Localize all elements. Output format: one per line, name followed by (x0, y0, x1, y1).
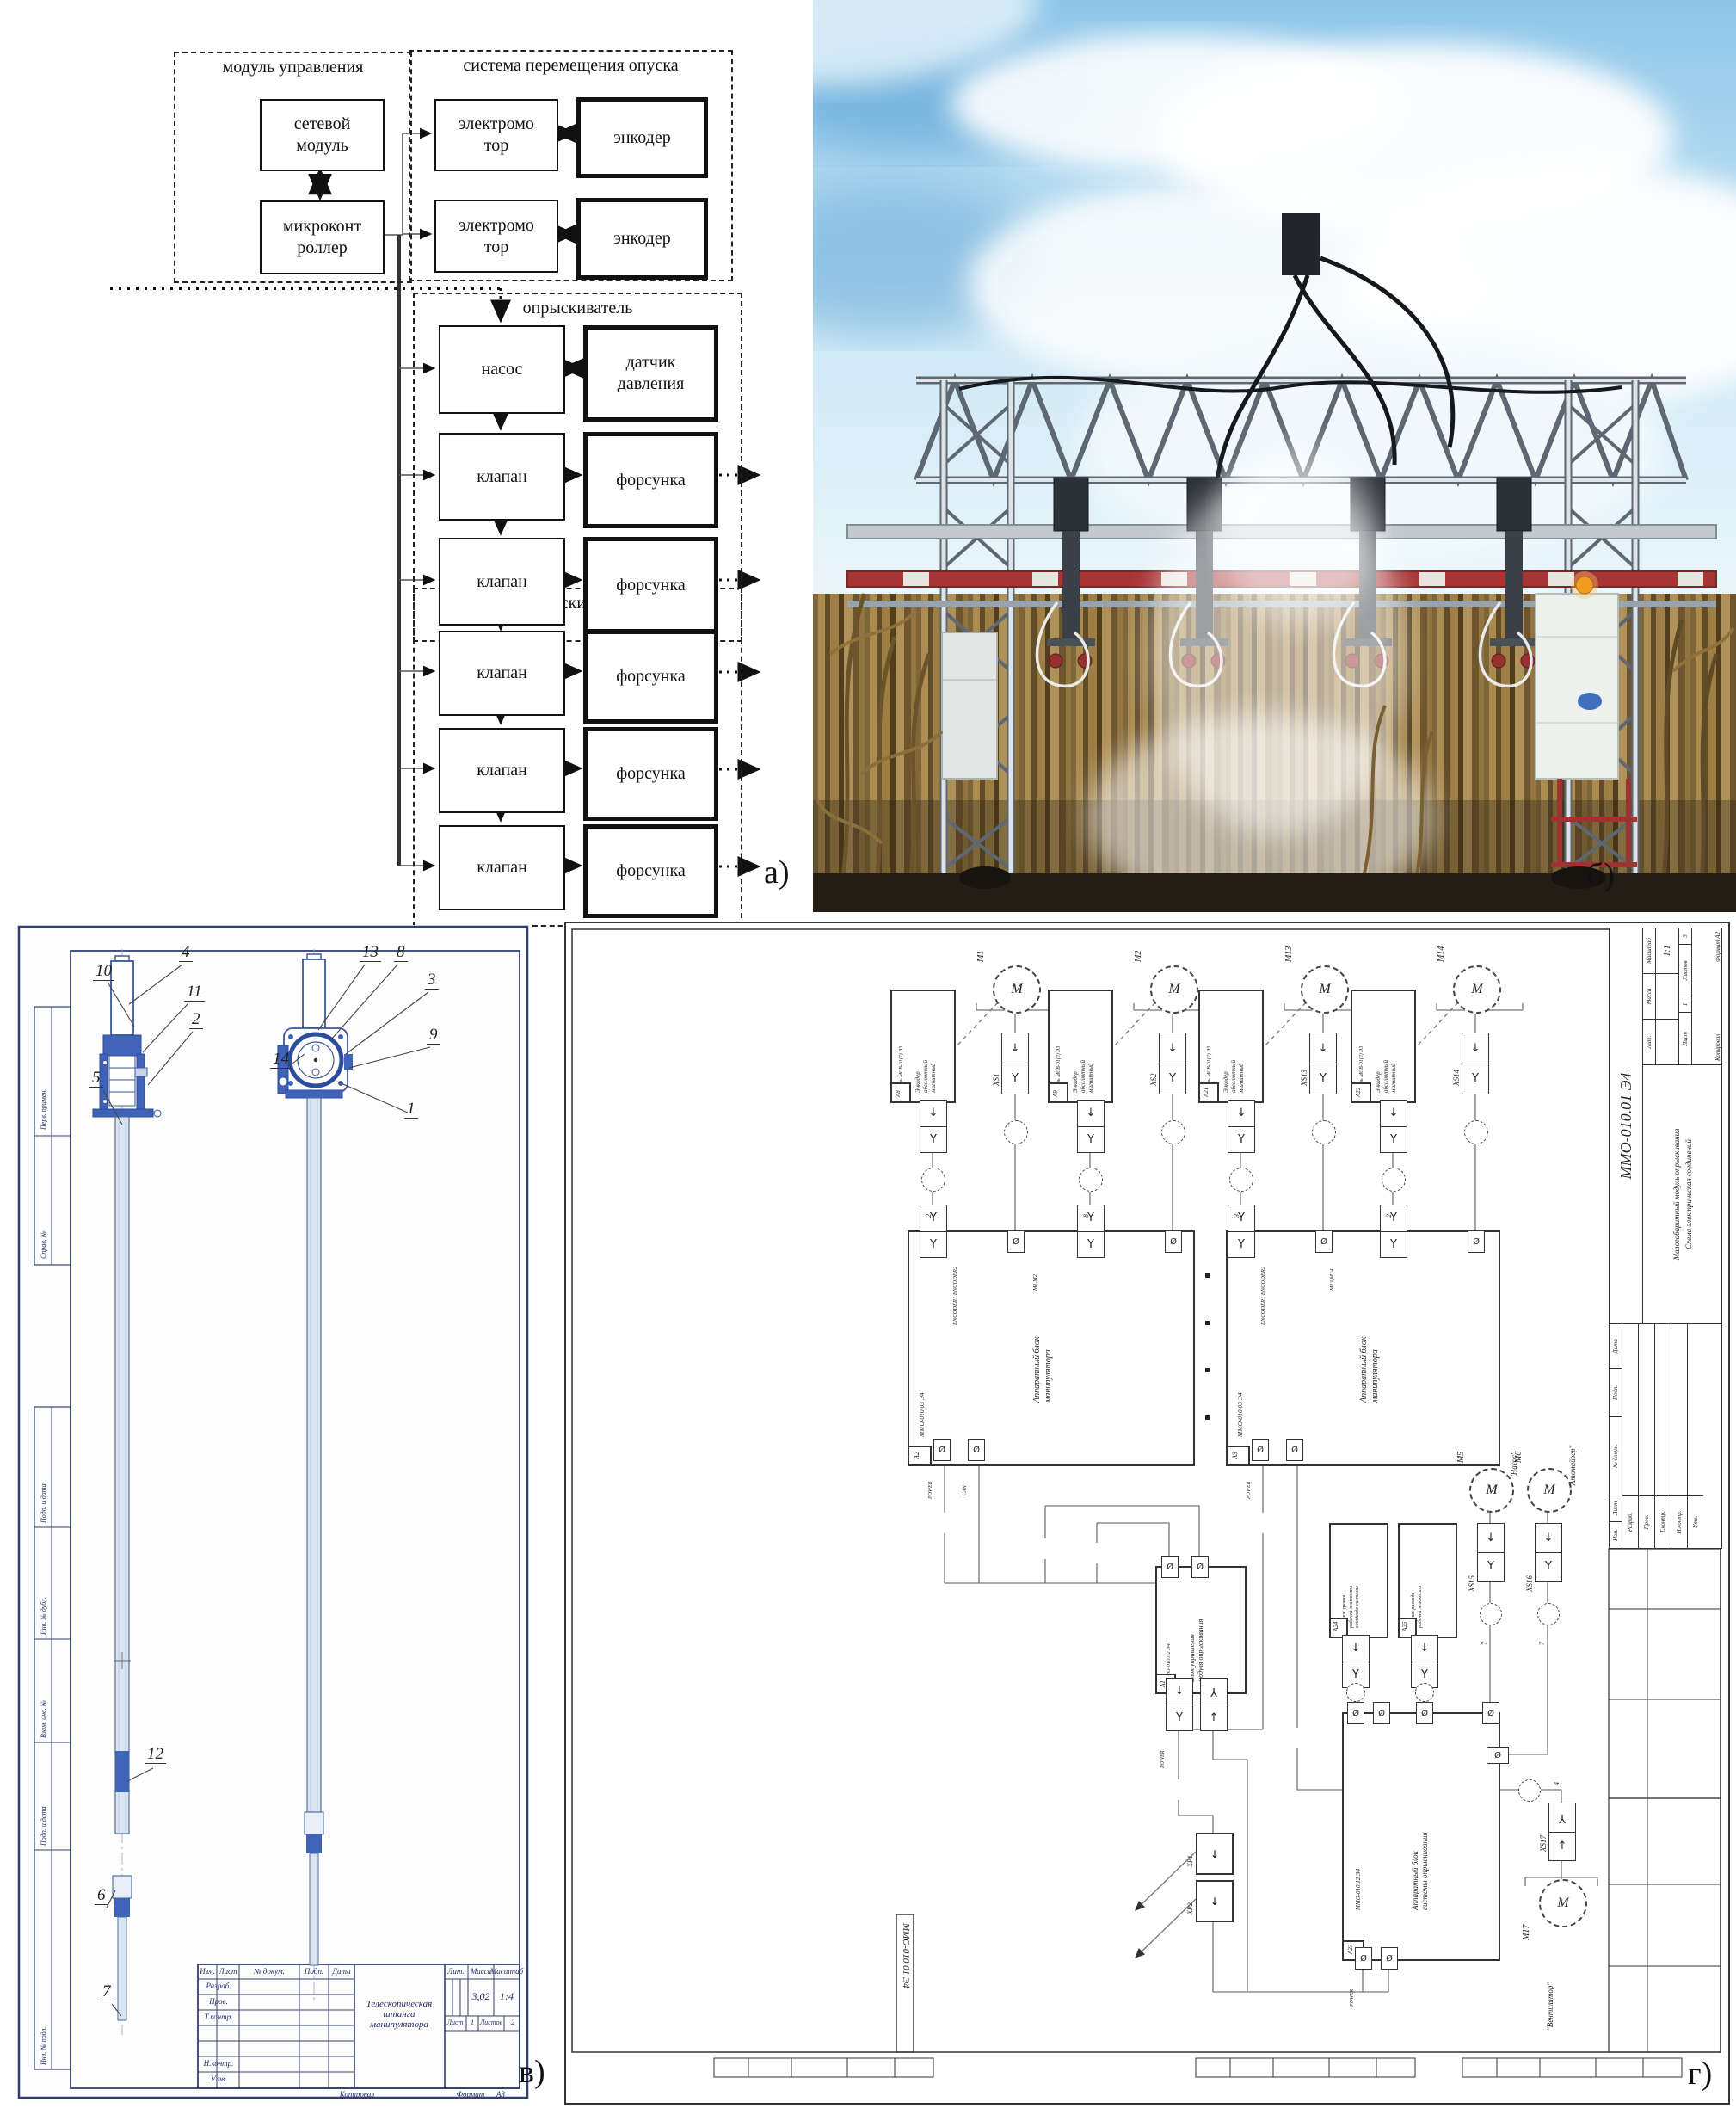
tb-mass-value: 3,02 (472, 1990, 490, 2003)
tb-footer-copy: Копировал (340, 2090, 374, 2099)
system-top-port-4: Ø (1482, 1702, 1499, 1724)
motor-circle-m17: М (1539, 1879, 1587, 1927)
xp1-box: ↓ (1196, 1833, 1234, 1875)
gtb-role-tkontr: Т.контр. (1655, 1495, 1671, 1548)
xp2-label: ХР2 (1186, 1902, 1195, 1914)
control-bottom-conn-2: Y↑ (1200, 1678, 1228, 1731)
manip-right-motor-port-1: Ø (1315, 1230, 1333, 1253)
manip-right-tag: А3 (1231, 1452, 1240, 1459)
block-pump: насос (439, 325, 565, 414)
system-bottom-port-2: Ø (1381, 1947, 1398, 1970)
left-control-box (942, 632, 997, 779)
motor-circle-m5: М (1469, 1468, 1514, 1513)
junction-circle (921, 1168, 945, 1192)
pump-label: М5 (1456, 1452, 1468, 1463)
xs-label-1: XS1 (992, 1074, 1001, 1087)
y-contact-icon: Y (1002, 1064, 1028, 1094)
xs17-connector: Y↑ (1548, 1803, 1576, 1861)
group-motion-label: система перемещения опуска (410, 56, 731, 76)
wire-number: 7 (1481, 1642, 1489, 1645)
arrow-down-icon: ↓ (920, 1101, 946, 1127)
xp1-label: ХР1 (1186, 1855, 1195, 1867)
schematic-title: Малогабаритный модуль опрыскивания (1672, 1129, 1681, 1261)
gtb-mass-header: Масса (1643, 973, 1655, 1019)
tb-role-razrab: Разраб. (206, 1982, 231, 1990)
group-sprayer1-label: опрыскиватель (415, 299, 741, 318)
motor-circle-m13: М (1301, 965, 1349, 1014)
manip-right-ports-top-label: ENCODER1 ENCODER2 (1260, 1267, 1267, 1325)
callout-6: 6 (95, 1887, 108, 1905)
system-top-port-3: Ø (1416, 1702, 1433, 1724)
y-contact-icon: Y (1160, 1064, 1185, 1094)
arrow-down-icon: ↓ (1160, 1033, 1185, 1064)
motor-label-m1: М1 (976, 951, 988, 962)
callout-1: 1 (404, 1101, 418, 1119)
rod-left-view (93, 949, 161, 2035)
sensor-flow-tag: А25 (1401, 1622, 1409, 1631)
encoder-connector-2: ↓Y (1077, 1100, 1105, 1153)
control-block-text: Блок управления модуля опрыскивания (1188, 1619, 1205, 1682)
block-nozzle-4: форсунка (583, 727, 718, 821)
schematic-title-block: Изм. Лист № докум. Подп. Дата Разраб. Пр… (1609, 928, 1722, 1549)
tb-sheet-value: 1 (471, 2019, 474, 2026)
schematic-designation-inverted: ММО-010.01 Э4 (901, 1923, 911, 1988)
callout-12: 12 (145, 1746, 166, 1764)
xs-connector-3: ↓Y (1309, 1033, 1337, 1094)
gtb-col-podp: Подп. (1610, 1368, 1622, 1416)
manip-left-power-label: POWER (928, 1482, 935, 1499)
encoder-module-text-3: Энкодер абсолютный магнитный (1222, 1060, 1245, 1093)
stamp-inv-podl: Инв. № подл. (40, 2027, 47, 2065)
y-contact-icon: Y (920, 1127, 946, 1153)
callout-4: 4 (179, 944, 193, 962)
y-contact-icon: Y (1381, 1127, 1407, 1153)
control-top-port-2: Ø (1191, 1556, 1209, 1578)
block-microcontroller: микроконт роллер (260, 200, 385, 274)
tb-col-izm: Изм. (200, 1967, 215, 1976)
encoder-tag-1: А8 (895, 1090, 902, 1097)
arrow-down-icon: ↓ (1310, 1033, 1336, 1064)
junction-circle (1312, 1120, 1336, 1144)
xs-connector-4: ↓Y (1462, 1033, 1489, 1094)
manip-left-ports-top-label: ENCODER1 ENCODER2 (952, 1267, 959, 1325)
blue-object (1578, 693, 1602, 710)
callout-leaders (103, 965, 430, 2016)
sensor-level-tag: А24 (1333, 1622, 1340, 1631)
fan-caption: "Вентилятор" (1546, 1982, 1555, 2031)
encoder-tag-4: А22 (1355, 1088, 1363, 1097)
manip-right-power-port: Ø (1252, 1439, 1269, 1461)
tb-role-nkontr: Н.контр. (204, 2059, 234, 2068)
gtb-col-list: Лист (1610, 1495, 1622, 1521)
label-panel-v: в) (519, 2053, 545, 2091)
manip-right-enc-conn-1: YY (1228, 1205, 1255, 1258)
junction-circle (1464, 1120, 1488, 1144)
manipulator-block-right-designation: ММО-010.03 Э4 (1236, 1392, 1244, 1437)
wire-number: 4 (1553, 1782, 1561, 1785)
tb-sheet-label: Лист (447, 2019, 464, 2026)
manip-left-enc-conn-1: YY (920, 1205, 947, 1258)
gtb-format-value: А2 (1714, 932, 1721, 939)
system-top-port-1: Ø (1347, 1702, 1364, 1724)
gtb-col-dokum: № докум. (1610, 1416, 1622, 1495)
system-block-text: Аппаратный блок системы опрыскивания (1411, 1832, 1431, 1910)
manip-left-can-label: CAN (963, 1485, 970, 1495)
encoder-connector-4: ↓Y (1380, 1100, 1407, 1153)
tb-scale-value: 1:4 (500, 1990, 514, 2003)
gtb-col-data: Дата (1610, 1324, 1622, 1368)
manip-left-motor-port-1: Ø (1007, 1230, 1025, 1253)
block-valve-2: клапан (439, 538, 565, 626)
xs-connector-1: ↓Y (1001, 1033, 1029, 1094)
group-control-label: модуль управления (175, 58, 410, 77)
encoder-module-text-4: Энкодер абсолютный магнитный (1375, 1060, 1397, 1093)
junction-circle (1415, 1683, 1434, 1702)
system-right-port: Ø (1487, 1747, 1509, 1764)
wire-number: 3 (1233, 1214, 1241, 1218)
junction-circle (1229, 1168, 1253, 1192)
gtb-lit-header: Лит. (1643, 1019, 1655, 1064)
tb-mass-header: Масса (471, 1967, 491, 1976)
junction-circle (1346, 1683, 1365, 1702)
manip-left-tag: А2 (913, 1452, 921, 1459)
callout-8: 8 (394, 944, 408, 962)
block-pressure-sensor: датчик давления (583, 325, 718, 422)
gtb-sheets-label: Листов (1679, 944, 1691, 996)
y-contact-icon: Y (1310, 1064, 1336, 1094)
tb-sheets-label: Листов (480, 2019, 502, 2026)
y-contact-icon: Y (1228, 1127, 1254, 1153)
block-nozzle-1: форсунка (583, 432, 718, 528)
xs17-label: XS17 (1539, 1835, 1548, 1852)
panel-block-diagram: модуль управления система перемещения оп… (17, 7, 804, 932)
arrow-down-icon: ↓ (1462, 1033, 1488, 1064)
manip-left-motor-ports-label: М1,М2 (1032, 1274, 1039, 1291)
branch-m14: Модуль МСВ-01(2) Э3 Энкодер абсолютный м… (1351, 938, 1574, 1179)
xs-connector-2: ↓Y (1159, 1033, 1186, 1094)
encoder-module-text-1: Энкодер абсолютный магнитный (914, 1060, 937, 1093)
manip-left-can-port: Ø (968, 1439, 985, 1461)
system-tag: А23 (1347, 1945, 1355, 1954)
gtb-col-izm: Изм. (1610, 1521, 1622, 1548)
xs16-label: XS16 (1525, 1575, 1535, 1592)
block-electromotor-2: электромо тор (434, 200, 558, 273)
junction-circle (1004, 1120, 1028, 1144)
panel-wiring-schematic: Модуль МСВ-01(2) Э3 Энкодер абсолютный м… (563, 921, 1732, 2106)
gtb-sheet-label: Лист (1679, 1013, 1691, 1065)
y-contact-icon: Y (1462, 1064, 1488, 1094)
schematic-designation: ММО-010.01 Э4 (1610, 928, 1643, 1323)
sensor-flow-conn: ↓Y (1411, 1635, 1438, 1688)
xs-label-13: XS13 (1300, 1070, 1309, 1086)
motor-label-m2: М2 (1134, 951, 1145, 962)
manip-left-power-port: Ø (933, 1439, 951, 1461)
callout-7: 7 (100, 1983, 114, 2001)
stamp-podp-data-1: Подп. и дата (40, 1483, 47, 1523)
wire-number: 8 (1082, 1214, 1091, 1218)
manipulator-block-right-text: Аппаратный блок манипулятора (1359, 1336, 1381, 1403)
tb-col-list: Лист (219, 1967, 237, 1976)
arrow-down-icon: ↓ (1228, 1101, 1254, 1127)
manip-right-power-label: POWER (1247, 1482, 1253, 1499)
callout-14: 14 (270, 1051, 292, 1069)
control-bottom-conn-1: ↓Y (1166, 1678, 1193, 1731)
gtb-role-prov: Пров. (1639, 1495, 1654, 1548)
control-power-label: POWER (1160, 1751, 1167, 1768)
block-nozzle-2: форсунка (583, 537, 718, 633)
manip-left-enc-conn-2: YY (1077, 1205, 1105, 1258)
atomizer-caption: "Атомайзер" (1568, 1446, 1578, 1489)
beacon-orange (1576, 576, 1593, 594)
tb-footer-format: Формат (457, 2090, 485, 2099)
tb-role-prov: Пров. (209, 1997, 228, 2006)
schematic-subtitle: Схема электрическая соединений (1684, 1139, 1693, 1249)
junction-circle (1161, 1120, 1185, 1144)
junction-circle (1382, 1168, 1406, 1192)
block-valve-5: клапан (439, 825, 565, 910)
stamp-podp-data-2: Подп. и дата (40, 1806, 47, 1846)
system-bottom-port-1: Ø (1355, 1947, 1372, 1970)
gtb-sheet-value: 1 (1679, 996, 1691, 1013)
system-power-label: POWER (1350, 1989, 1357, 2007)
manip-right-motor-port-2: Ø (1468, 1230, 1485, 1253)
drawing-v-linework (17, 925, 529, 2102)
callout-10: 10 (93, 963, 114, 981)
figure-page: модуль управления система перемещения оп… (0, 0, 1736, 2121)
xs-label-14: XS14 (1452, 1070, 1462, 1086)
gtb-sheets-value: 3 (1679, 928, 1691, 944)
xp2-box: ↓ (1196, 1880, 1234, 1922)
tb-title: Телескопическая штанга манипулятора (366, 1999, 433, 2030)
xs16-connector: ↓Y (1535, 1523, 1562, 1582)
system-top-port-2: Ø (1373, 1702, 1390, 1724)
block-electromotor-1: электромо тор (434, 99, 558, 171)
manip-right-can-port: Ø (1286, 1439, 1303, 1461)
xs15-label: XS15 (1468, 1575, 1477, 1592)
stamp-vzam-inv: Взам. инв. № (40, 1700, 47, 1738)
arrow-down-icon: ↓ (1002, 1033, 1028, 1064)
encoder-connector-3: ↓Y (1228, 1100, 1255, 1153)
manipulator-block-left-designation: ММО-010.03 Э4 (918, 1392, 926, 1437)
tb-role-tkontr: Т.контр. (205, 2013, 233, 2021)
block-nozzle-3: форсунка (583, 630, 718, 724)
label-panel-b: б) (1587, 856, 1615, 894)
stamp-inv-dubl: Инв. № дубл. (40, 1597, 47, 1635)
motor-circle-m2: М (1150, 965, 1198, 1014)
gtb-scale-value: 1:1 (1656, 928, 1678, 973)
block-valve-1: клапан (439, 433, 565, 521)
callout-13: 13 (360, 944, 381, 962)
gtb-format: Формат (1714, 940, 1721, 962)
block-network-module: сетевой модуль (260, 99, 385, 171)
fan-label: М17 (1522, 1925, 1533, 1940)
callout-5: 5 (89, 1070, 103, 1088)
block-encoder-2: энкодер (576, 198, 708, 280)
xs-label-2: XS2 (1149, 1074, 1159, 1087)
gtb-scale-header: Масштаб (1643, 928, 1655, 973)
encoder-connector-1: ↓Y (920, 1100, 947, 1153)
tb-scale-header: Масштаб (490, 1967, 523, 1976)
manip-right-enc-conn-2: YY (1380, 1205, 1407, 1258)
photo-field-sprayer (813, 0, 1736, 912)
sensor-level-conn: ↓Y (1342, 1635, 1370, 1688)
manip-left-motor-port-2: Ø (1165, 1230, 1182, 1253)
callout-3: 3 (425, 971, 439, 990)
gtb-role-nkontr: Н.контр. (1671, 1495, 1687, 1548)
tb-role-utv: Утв. (211, 2075, 227, 2083)
stamp-sprav-no: Справ. № (40, 1231, 47, 1259)
tb-col-podp: Подп. (305, 1967, 323, 1976)
rod-right-view (278, 949, 353, 2001)
callout-9: 9 (427, 1027, 440, 1045)
junction-circle (1518, 1779, 1541, 1802)
gtb-copy: Копировал (1714, 1034, 1721, 1061)
system-block-designation: ММО-010.12 Э4 (1355, 1869, 1363, 1910)
junction-circle (1537, 1603, 1560, 1625)
atomizer-label: М6 (1514, 1452, 1525, 1463)
stamp-perv-primen: Перв. примен. (40, 1089, 47, 1130)
callout-11: 11 (184, 983, 205, 1002)
arrow-down-icon: ↓ (1381, 1101, 1407, 1127)
panel-telescopic-rod-drawing: 10 4 11 2 5 12 6 7 13 8 3 9 14 1 Перв. п… (17, 925, 529, 2102)
y-contact-icon: Y (1078, 1127, 1104, 1153)
tb-sheets-value: 2 (511, 2019, 514, 2026)
block-valve-4: клапан (439, 728, 565, 813)
wire-number: 7 (1538, 1642, 1547, 1645)
label-panel-g: г) (1688, 2055, 1712, 2093)
tb-footer-format-value: А3 (496, 2090, 505, 2099)
gtb-role-razrab: Разраб. (1622, 1495, 1638, 1548)
motor-circle-m1: М (993, 965, 1041, 1014)
manipulator-block-left-text: Аппаратный блок манипулятора (1032, 1336, 1054, 1403)
gtb-role-utv: Утв. (1688, 1495, 1703, 1548)
wire-number: 2 (1385, 1214, 1394, 1218)
junction-circle (1079, 1168, 1103, 1192)
encoder-tag-3: А21 (1203, 1088, 1210, 1097)
junction-circle (1480, 1603, 1502, 1625)
block-nozzle-5: форсунка (583, 824, 718, 918)
callout-2: 2 (189, 1011, 203, 1029)
xs15-connector: ↓Y (1477, 1523, 1505, 1582)
encoder-tag-2: А9 (1052, 1090, 1060, 1097)
encoder-module-text-2: Энкодер абсолютный магнитный (1072, 1060, 1094, 1093)
motor-label-m13: М13 (1284, 946, 1296, 962)
manip-right-motor-ports-label: М13,М14 (1329, 1269, 1336, 1291)
block-valve-3: клапан (439, 631, 565, 716)
wire-number: 2 (925, 1214, 933, 1218)
motor-label-m14: М14 (1437, 946, 1448, 962)
label-panel-a: а) (764, 854, 790, 891)
motor-circle-m6: М (1527, 1468, 1572, 1513)
block-encoder-1: энкодер (576, 97, 708, 178)
arrow-down-icon: ↓ (1078, 1101, 1104, 1127)
tb-col-dokum: № докум. (254, 1967, 285, 1976)
control-top-port-1: Ø (1161, 1556, 1179, 1578)
tb-lit-header: Лит. (447, 1967, 464, 1976)
motor-circle-m14: М (1453, 965, 1501, 1014)
tb-col-data: Дата (332, 1967, 350, 1976)
